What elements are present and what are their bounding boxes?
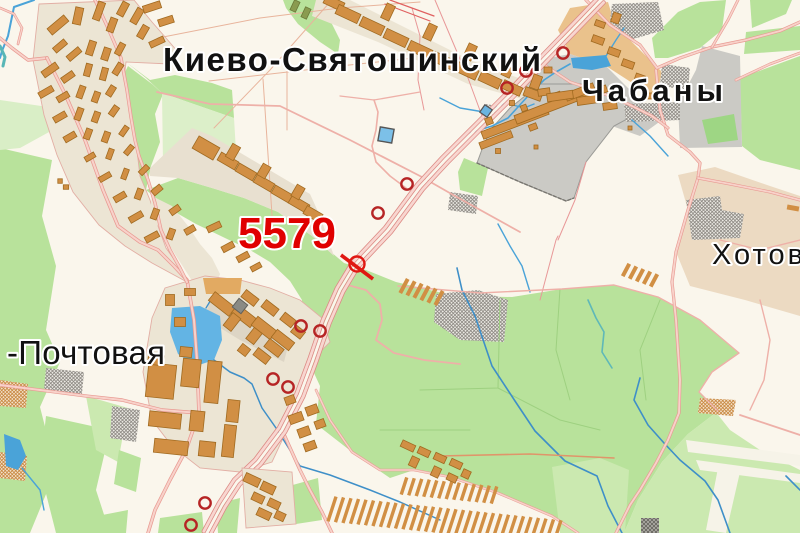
svg-text:Хотов: Хотов: [712, 239, 800, 271]
svg-text:-Почтовая: -Почтовая: [7, 334, 165, 371]
svg-text:Киево-Святошинский: Киево-Святошинский: [163, 41, 541, 78]
svg-text:5579: 5579: [238, 209, 336, 258]
svg-text:Чабаны: Чабаны: [582, 73, 723, 108]
